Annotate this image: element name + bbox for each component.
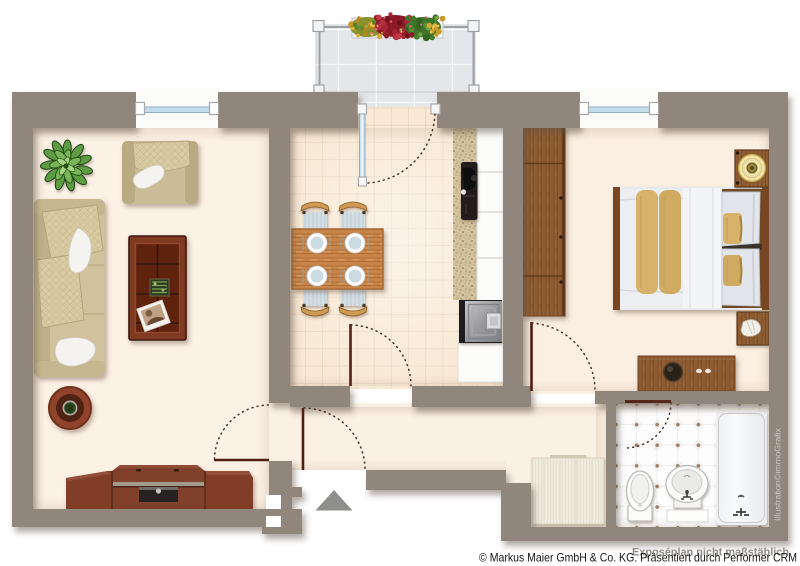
svg-text:Illustration©immoGrafix: Illustration©immoGrafix	[774, 428, 783, 521]
svg-text:© Markus Maier GmbH & Co. KG.: © Markus Maier GmbH & Co. KG. Präsentier…	[479, 552, 797, 565]
